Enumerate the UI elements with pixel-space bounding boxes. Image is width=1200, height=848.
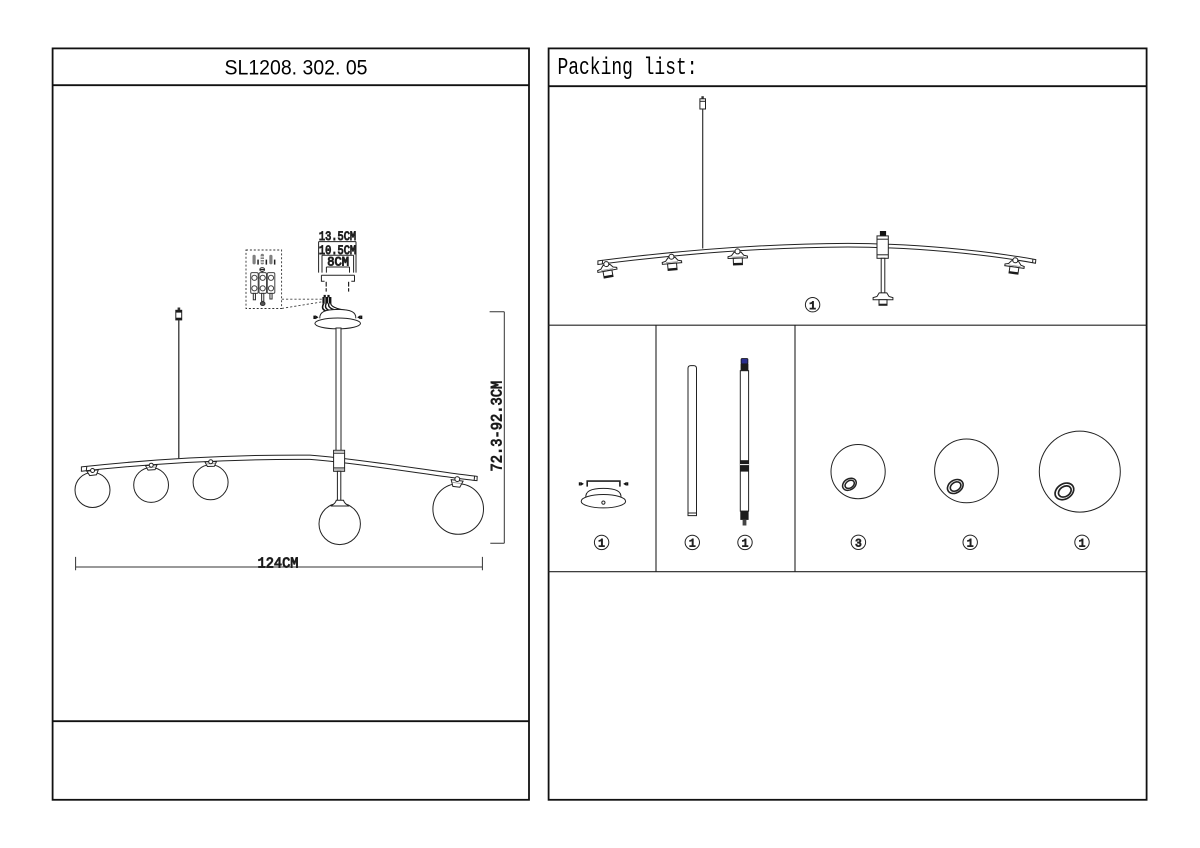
svg-text:3: 3 <box>855 539 862 551</box>
svg-text:1: 1 <box>809 301 816 313</box>
svg-text:1: 1 <box>689 539 696 551</box>
svg-text:Packing list:: Packing list: <box>558 55 698 82</box>
svg-text:1: 1 <box>1079 539 1086 551</box>
svg-text:72.3-92.3CM: 72.3-92.3CM <box>489 381 507 472</box>
svg-text:1: 1 <box>967 539 974 551</box>
svg-text:SL1208. 302. 05: SL1208. 302. 05 <box>225 57 368 80</box>
svg-text:1: 1 <box>598 539 605 551</box>
svg-text:1: 1 <box>742 539 749 551</box>
svg-text:124CM: 124CM <box>258 556 299 573</box>
